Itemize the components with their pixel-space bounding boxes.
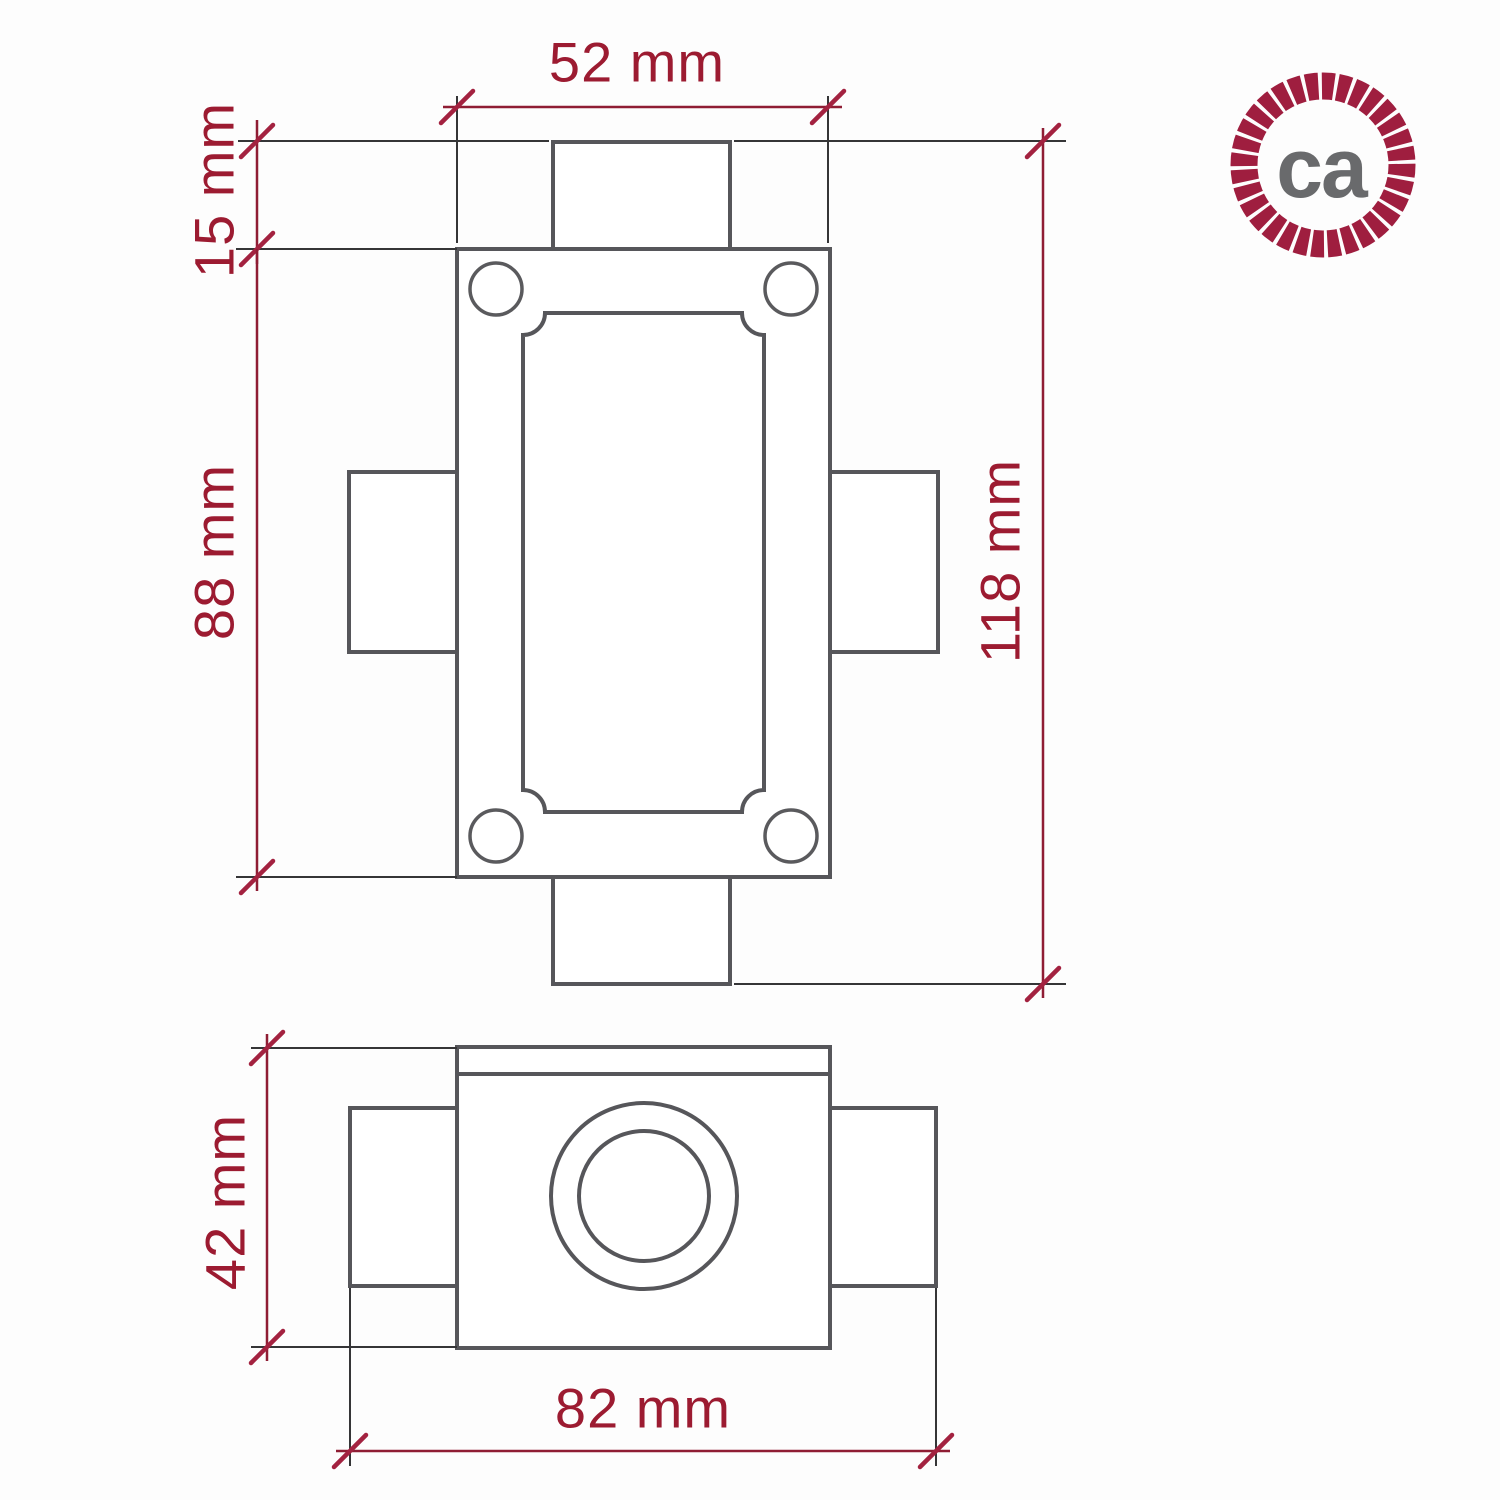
front-body [457,249,830,877]
label-side-body-height: 42 mm [194,1114,257,1290]
screw-hole-top-right [765,263,817,315]
front-top-stub [553,142,730,249]
brand-logo-text: ca [1276,121,1369,215]
front-left-stub [349,472,457,652]
side-right-stub [830,1108,936,1286]
label-overall-height: 118 mm [969,459,1032,663]
screw-hole-bottom-right [765,810,817,862]
label-overall-width: 82 mm [555,1377,731,1440]
screw-hole-top-left [470,263,522,315]
side-left-stub [350,1108,457,1286]
dimension-diagram-page: 52 mm 15 mm 88 mm 118 mm 42 mm 82 mm ca [0,0,1500,1500]
screw-hole-bottom-left [470,810,522,862]
front-view [349,142,938,984]
front-bottom-stub [553,877,730,984]
label-stub-width: 52 mm [549,31,725,94]
label-neck-height: 15 mm [183,102,246,278]
technical-drawing: 52 mm 15 mm 88 mm 118 mm 42 mm 82 mm ca [0,0,1500,1500]
label-body-height: 88 mm [183,464,246,640]
cable-entry-inner-ring [579,1131,709,1261]
side-view [350,1047,936,1348]
brand-logo: ca [1234,76,1412,254]
front-right-stub [830,472,938,652]
